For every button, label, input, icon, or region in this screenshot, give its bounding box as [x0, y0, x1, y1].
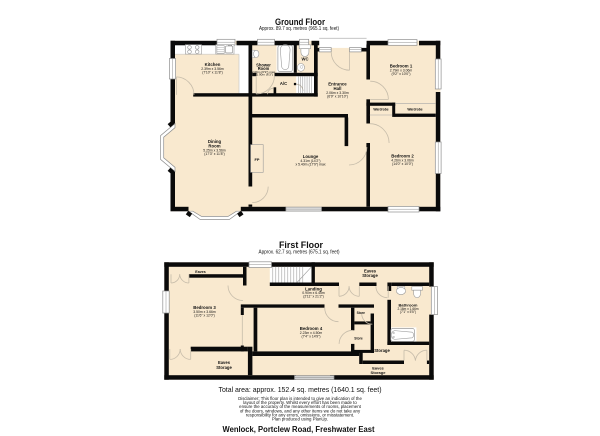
svg-text:(14'0" x 10'0"): (14'0" x 10'0"): [392, 162, 413, 166]
svg-text:Total area: approx. 152.4 sq.: Total area: approx. 152.4 sq. metres (16…: [219, 385, 382, 394]
svg-text:Wenlock, Portclew Road, Freshw: Wenlock, Portclew Road, Freshwater East: [223, 425, 375, 434]
svg-text:Wardrobe: Wardrobe: [407, 108, 422, 112]
svg-text:Approx. 89.7 sq. metres (965.1: Approx. 89.7 sq. metres (965.1 sq. feet): [259, 26, 339, 32]
svg-text:(11'6" x 12'0"): (11'6" x 12'0"): [194, 314, 215, 318]
svg-text:(2'11" x 21'2"): (2'11" x 21'2"): [303, 295, 324, 299]
svg-text:Wardrobe: Wardrobe: [373, 108, 388, 112]
svg-text:(6'9" x 10'10"): (6'9" x 10'10"): [327, 94, 348, 98]
svg-text:A/C: A/C: [280, 81, 287, 86]
svg-text:(9'2" x 10'0"): (9'2" x 10'0"): [392, 72, 411, 76]
svg-text:WC: WC: [302, 57, 309, 62]
svg-text:Approx. 62.7 sq. metres (675.1: Approx. 62.7 sq. metres (675.1 sq. feet): [259, 249, 340, 255]
svg-text:Store: Store: [354, 337, 363, 341]
svg-text:Storage: Storage: [374, 348, 390, 353]
svg-text:(7'4" x 14'9"): (7'4" x 14'9"): [302, 335, 321, 339]
svg-text:Eaves: Eaves: [195, 270, 205, 274]
svg-text:FP: FP: [255, 157, 260, 162]
svg-text:(7'10" x 11'8"): (7'10" x 11'8"): [202, 70, 223, 74]
svg-text:Store: Store: [357, 311, 366, 315]
svg-text:(17'3" x 11'8"): (17'3" x 11'8"): [204, 152, 225, 156]
svg-text:Plan produced using PlanUp.: Plan produced using PlanUp.: [272, 417, 328, 422]
svg-text:Storage: Storage: [216, 365, 232, 370]
svg-text:Storage: Storage: [362, 273, 378, 278]
svg-text:Storage: Storage: [371, 370, 387, 375]
svg-text:(7'1" x 5'5"): (7'1" x 5'5"): [400, 310, 416, 314]
svg-text:x 1.90m (6'3"): x 1.90m (6'3"): [254, 73, 273, 77]
svg-text:x 5.40m (17'9") max: x 5.40m (17'9") max: [295, 163, 325, 167]
